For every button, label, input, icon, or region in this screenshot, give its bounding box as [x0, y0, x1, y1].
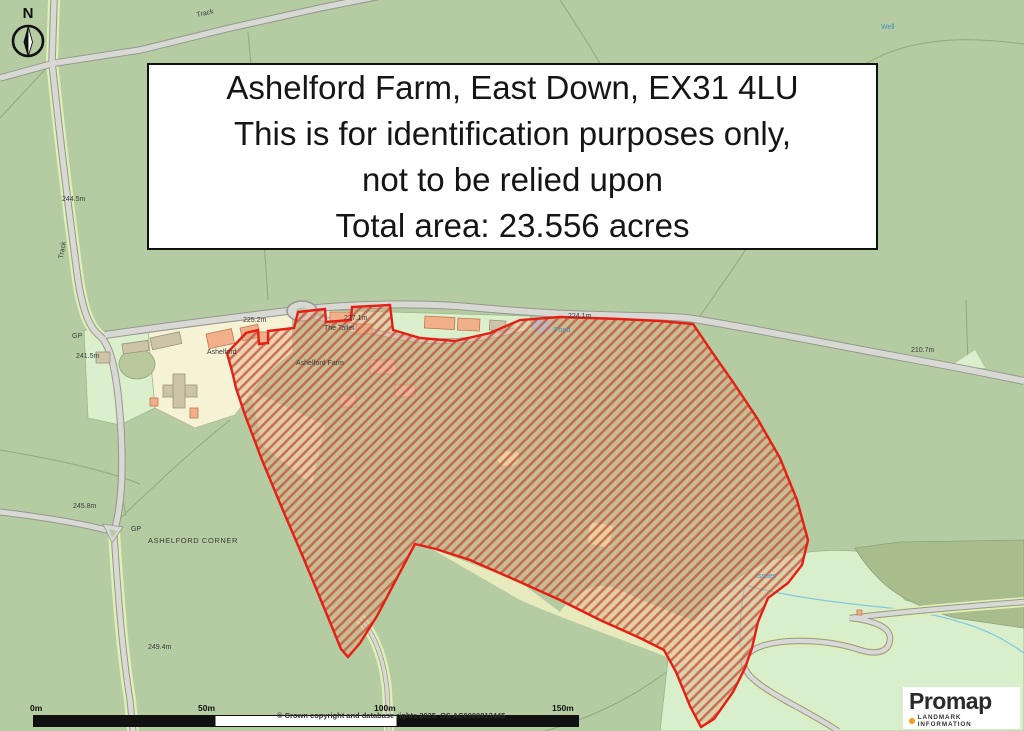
promap-brand-text: Promap [909, 689, 1014, 713]
north-arrow: N [5, 4, 51, 64]
title-disclaimer2: not to be relied upon [362, 157, 663, 203]
scale-tick-0: 0m [30, 703, 42, 713]
landmark-subtitle: LANDMARK INFORMATION [918, 714, 1014, 728]
title-address: Ashelford Farm, East Down, EX31 4LU [226, 65, 798, 111]
scale-tick-150: 150m [552, 703, 574, 713]
compass-needle-icon [24, 26, 29, 57]
landmark-dot-icon [909, 718, 915, 724]
title-disclaimer: This is for identification purposes only… [234, 111, 791, 157]
promap-plan-screenshot: { "title_box": { "lines": [ "Ashelford F… [0, 0, 1024, 731]
scale-tick-50: 50m [198, 703, 215, 713]
copyright-notice: © Crown copyright and database rights 20… [277, 711, 505, 720]
north-arrow-n: N [23, 5, 34, 22]
promap-logo: Promap LANDMARK INFORMATION [903, 687, 1020, 729]
title-total-area: Total area: 23.556 acres [335, 203, 689, 249]
compass-needle-half-icon [28, 26, 33, 57]
title-box: Ashelford Farm, East Down, EX31 4LU This… [147, 63, 878, 250]
